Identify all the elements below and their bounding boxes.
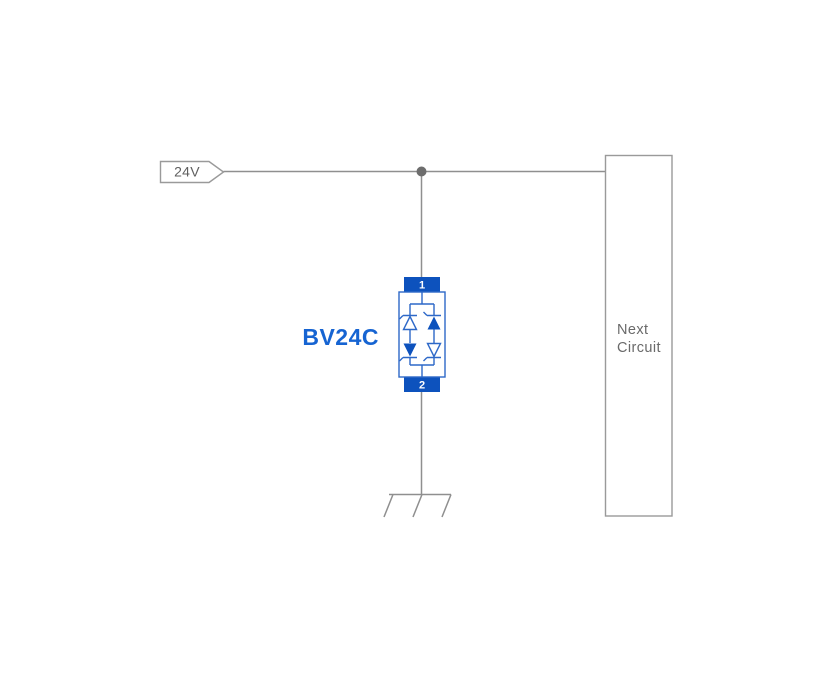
voltage-source-flag: 24V bbox=[161, 162, 224, 183]
circuit-schematic-canvas: 24V Next Circuit bbox=[0, 0, 832, 675]
next-circuit-label-line2: Circuit bbox=[617, 340, 661, 356]
ground-symbol bbox=[384, 495, 451, 518]
tvs-diode-component: 1 2 bbox=[399, 277, 445, 392]
component-label: BV24C bbox=[302, 324, 379, 350]
component-body bbox=[399, 292, 445, 377]
circuit-diagram: 24V Next Circuit bbox=[0, 0, 832, 675]
ground-strokes bbox=[384, 495, 451, 518]
next-circuit-label-line1: Next bbox=[617, 322, 648, 338]
next-circuit-block: Next Circuit bbox=[606, 156, 673, 517]
terminal-2-label: 2 bbox=[419, 380, 425, 392]
terminal-1-label: 1 bbox=[419, 280, 425, 292]
junction-dot bbox=[417, 167, 427, 177]
voltage-label: 24V bbox=[174, 164, 200, 180]
